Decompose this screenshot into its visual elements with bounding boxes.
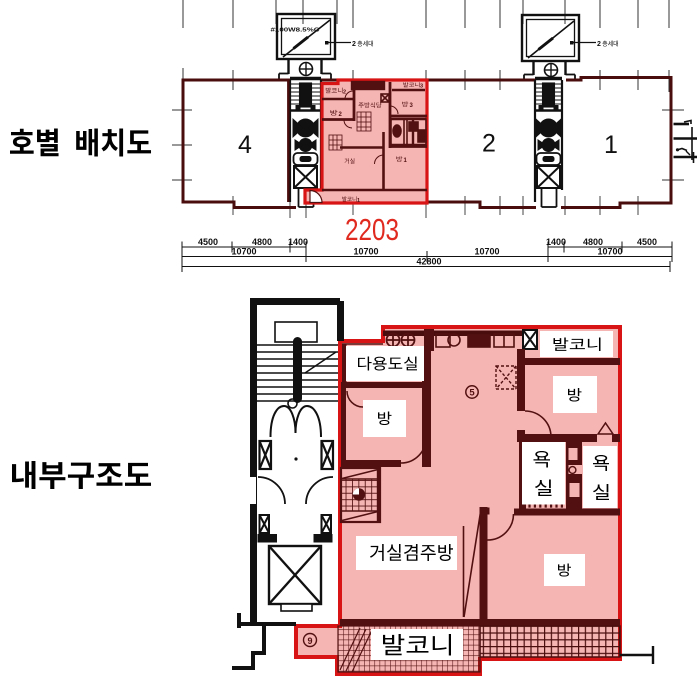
svg-text:1: 1 (357, 198, 360, 204)
svg-text:2: 2 (482, 130, 496, 158)
svg-text:2: 2 (343, 90, 346, 96)
svg-text:10700: 10700 (231, 247, 256, 257)
svg-text:10700: 10700 (353, 247, 378, 257)
svg-text:3: 3 (420, 84, 423, 90)
svg-text:4800: 4800 (583, 237, 603, 247)
svg-text:1400: 1400 (288, 237, 308, 247)
svg-text:2203: 2203 (345, 212, 399, 247)
svg-text:10700: 10700 (597, 247, 622, 257)
svg-text:#100W8.5%C: #100W8.5%C (271, 28, 320, 34)
svg-text:2: 2 (597, 41, 601, 48)
svg-text:1400: 1400 (546, 237, 566, 247)
svg-text:4500: 4500 (198, 237, 218, 247)
svg-text:4800: 4800 (252, 237, 272, 247)
svg-text:4: 4 (238, 131, 252, 159)
svg-text:10700: 10700 (474, 247, 499, 257)
svg-text:5: 5 (469, 388, 475, 399)
svg-text:1: 1 (604, 131, 618, 159)
svg-text:42800: 42800 (416, 257, 441, 267)
svg-text:9: 9 (307, 636, 312, 646)
svg-text:4500: 4500 (637, 237, 657, 247)
svg-text:2: 2 (352, 41, 356, 48)
